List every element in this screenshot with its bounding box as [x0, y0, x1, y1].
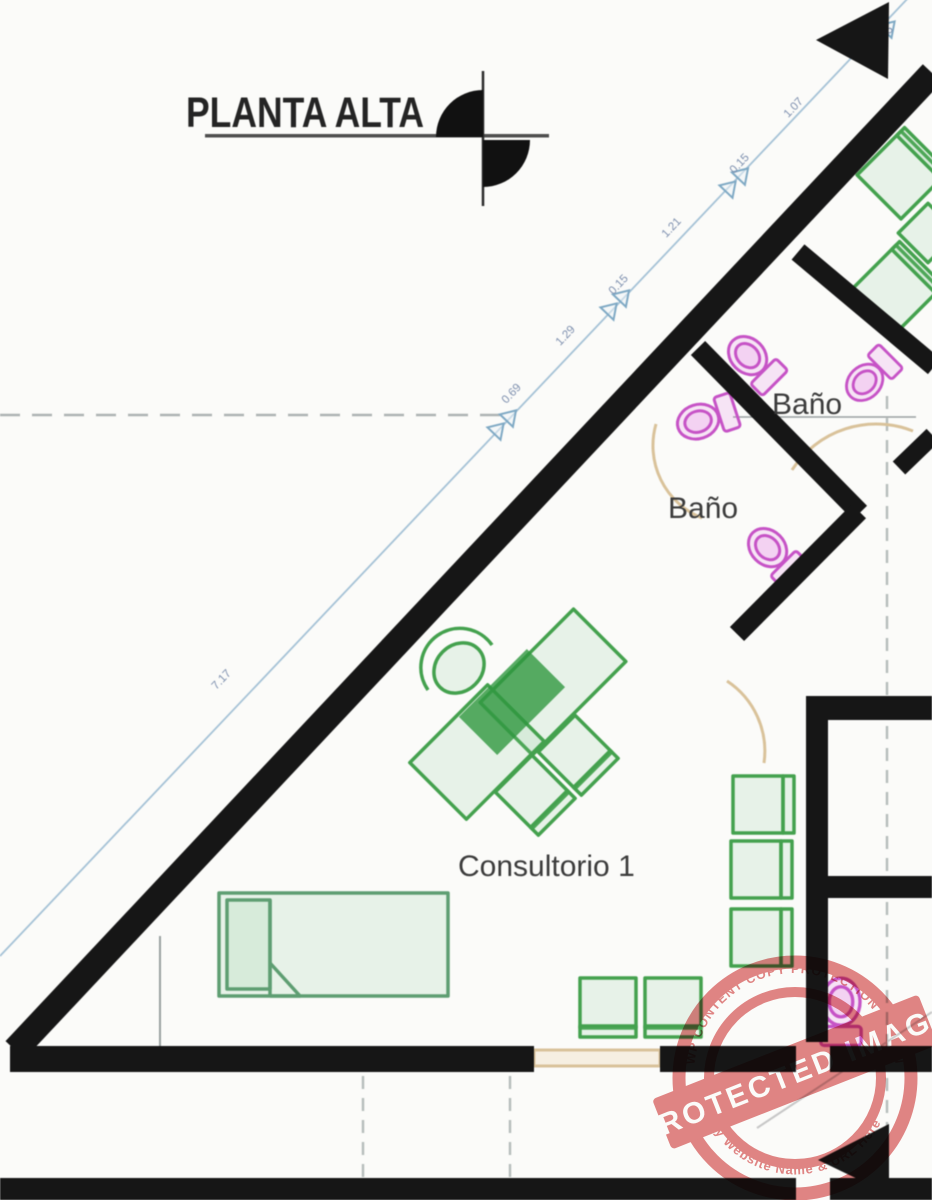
chair-column [731, 776, 794, 966]
room-label-consultorio: Consultorio 1 [458, 850, 635, 883]
floor-plan-drawing: 7.17 0.69 1.29 0.15 1.21 0.15 1.07 1.25 [0, 0, 932, 1200]
bottom-band-left [0, 1178, 796, 1200]
waiting-chair [731, 841, 781, 898]
wall-horizontal-mid-right [828, 876, 932, 898]
waiting-chair [580, 978, 636, 1028]
paper-background [0, 0, 932, 1200]
room-label-bath1: Baño [772, 388, 842, 421]
room-label-bath2: Baño [668, 492, 738, 525]
bed-pillow [227, 900, 270, 989]
door-leaf-bottom-wall [534, 1050, 660, 1066]
floor-plan-page: 7.17 0.69 1.29 0.15 1.21 0.15 1.07 1.25 [0, 0, 932, 1200]
waiting-chair-back [781, 841, 792, 898]
wall-horizontal-upper-right [806, 696, 932, 720]
title-underline [205, 134, 549, 138]
waiting-chair [733, 776, 783, 833]
waiting-chair-back [580, 1026, 636, 1037]
page-title: PLANTA ALTA [186, 89, 424, 137]
wall-bottom-left-segment [10, 1046, 534, 1072]
exam-bed [219, 893, 448, 996]
waiting-chair-back [783, 776, 794, 833]
